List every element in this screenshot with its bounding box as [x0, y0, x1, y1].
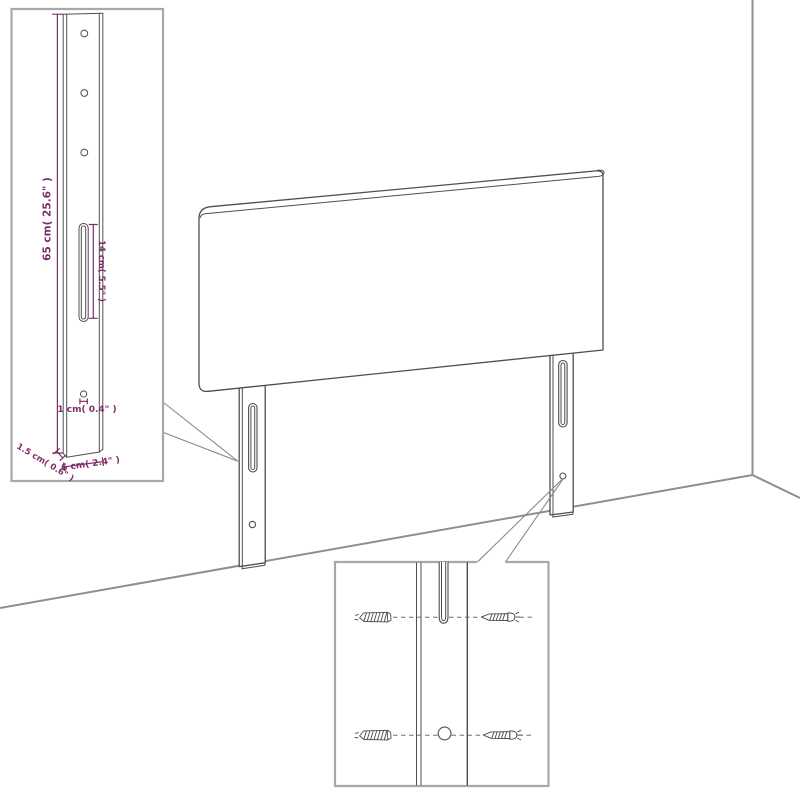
right-leg-slot: [559, 361, 567, 428]
leg-dimension-inset: 65 cm( 25.6" ) 14 cm( 5.5" ) 1 cm( 0.4" …: [12, 9, 164, 484]
inset2-slot: [439, 562, 448, 623]
callout-line-lower: [164, 433, 238, 462]
right-leg: [550, 343, 573, 517]
callout-line-upper: [164, 403, 238, 462]
callout-lines-left-inset: [164, 403, 238, 462]
label-slot-length: 14 cm( 5.5" ): [96, 240, 106, 302]
floor-line-right: [753, 475, 800, 498]
headboard-panel: [199, 170, 604, 391]
diagram-canvas: 65 cm( 25.6" ) 14 cm( 5.5" ) 1 cm( 0.4" …: [0, 0, 800, 800]
panel-outline: [199, 171, 603, 392]
headboard-diagram-svg: 65 cm( 25.6" ) 14 cm( 5.5" ) 1 cm( 0.4" …: [0, 0, 800, 800]
inset2-hole: [438, 727, 451, 740]
label-hole-width: 1 cm( 0.4" ): [57, 405, 116, 415]
callout-line-hole-right: [505, 479, 563, 562]
left-leg-hole: [249, 521, 255, 527]
left-leg: [239, 375, 265, 568]
right-leg-hole: [560, 473, 566, 479]
screw-detail-inset: [335, 562, 549, 786]
left-leg-slot: [249, 404, 257, 473]
label-leg-height: 65 cm( 25.6" ): [42, 177, 54, 261]
